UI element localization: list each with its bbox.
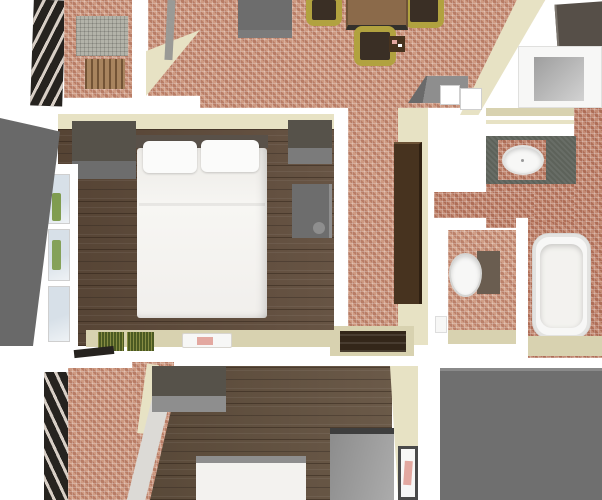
tall-gray-cabinet	[330, 428, 394, 500]
pillow-right	[201, 140, 259, 172]
lower-balcony-floor	[68, 368, 132, 500]
tub-beige-floor-strip	[526, 336, 602, 356]
tile-above-wc	[434, 192, 534, 218]
dining-chair-left	[306, 0, 342, 26]
leaning-picture	[398, 446, 418, 500]
picture-art	[403, 461, 413, 485]
appliance-box-2	[460, 88, 482, 110]
gray-sideboard-front	[238, 30, 292, 38]
second-bed-edge	[196, 456, 306, 463]
dresser-front	[152, 396, 226, 412]
second-bed	[196, 463, 306, 500]
gray-sideboard	[238, 0, 292, 30]
lower-balcony-railing	[44, 372, 68, 500]
duvet-fold-shadow	[139, 203, 265, 206]
hallway-floor	[348, 108, 398, 332]
bedroom-cabinet-1-top	[288, 120, 332, 148]
shower-glass-top	[534, 57, 584, 101]
small-dark-shelf	[389, 36, 405, 52]
bedroom-cabinet-2	[292, 184, 332, 238]
bathtub-basin	[540, 244, 583, 328]
book-cover-art	[197, 337, 213, 345]
cabinet-round-handle	[313, 222, 325, 234]
small-white-fixture	[435, 316, 447, 333]
stair-recess	[340, 331, 406, 352]
balcony-gray-mat	[76, 16, 128, 56]
dresser-top	[152, 366, 226, 396]
bedroom-wardrobe-front	[72, 161, 136, 179]
lower-door-sliver	[74, 346, 115, 358]
white-book	[182, 333, 232, 348]
bed-duvet	[137, 148, 267, 318]
shelf-item-dot-2	[398, 44, 402, 47]
floorplan-render	[0, 0, 602, 500]
sink-drain-dot	[521, 159, 524, 162]
bedroom-wardrobe-top	[72, 121, 136, 161]
shelf-item-dot	[392, 40, 397, 44]
appliance-box-1	[440, 85, 460, 105]
green-doormat-2	[127, 332, 154, 351]
wc-tub-divider-wall	[516, 218, 528, 358]
upper-balcony-railing	[30, 0, 66, 107]
tall-brown-wardrobe	[394, 142, 422, 304]
window-pane-2	[48, 229, 70, 281]
wc-beige-floor-strip	[448, 330, 518, 344]
dark-slab-top	[554, 1, 602, 50]
pillow-left	[143, 141, 197, 173]
dining-chair-right	[404, 0, 444, 28]
wooden-lounger	[85, 59, 125, 89]
bedroom-cabinet-1-front	[288, 148, 332, 164]
window-pane-3	[48, 286, 70, 342]
window-view-green-1	[52, 193, 61, 221]
flat-roof	[440, 368, 602, 500]
window-view-green-2	[52, 240, 61, 270]
